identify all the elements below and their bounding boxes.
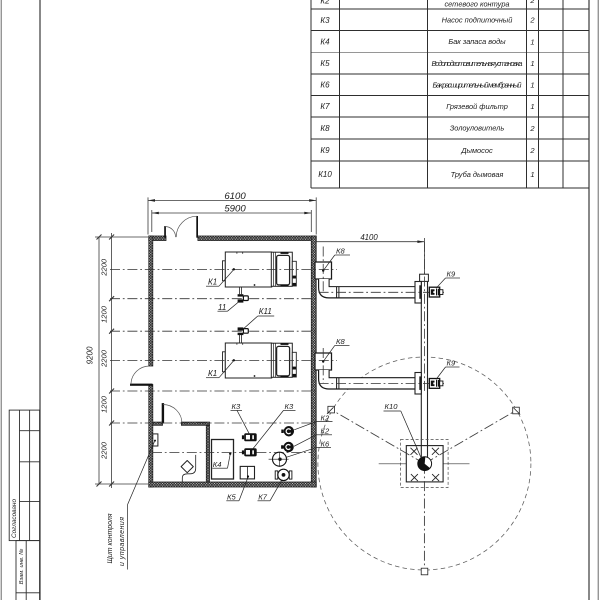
svg-text:К2: К2 <box>320 0 330 6</box>
svg-text:Труба дымовая: Труба дымовая <box>451 170 504 179</box>
svg-text:Бак запаса воды: Бак запаса воды <box>448 37 506 46</box>
svg-text:К3: К3 <box>320 16 330 25</box>
svg-text:К4: К4 <box>320 37 330 46</box>
svg-text:Дымосос: Дымосос <box>460 146 493 155</box>
svg-text:К11: К11 <box>259 307 272 316</box>
svg-text:5900: 5900 <box>224 203 246 214</box>
svg-text:К3: К3 <box>285 402 294 411</box>
svg-text:К10: К10 <box>385 402 399 411</box>
svg-text:Бак расширительный мембранный: Бак расширительный мембранный <box>433 80 522 89</box>
svg-text:К5: К5 <box>320 59 330 68</box>
svg-text:Насос подпиточный: Насос подпиточный <box>442 16 513 25</box>
svg-text:К9: К9 <box>447 270 456 279</box>
svg-text:К9: К9 <box>320 146 330 155</box>
svg-text:К9: К9 <box>447 359 456 368</box>
svg-text:сетевого контура: сетевого контура <box>444 0 509 9</box>
svg-text:Водоподготовительная установка: Водоподготовительная установка <box>432 59 523 68</box>
svg-text:2: 2 <box>529 124 535 133</box>
svg-text:2: 2 <box>529 146 535 155</box>
svg-text:9200: 9200 <box>86 346 95 364</box>
svg-text:2200: 2200 <box>100 349 109 368</box>
svg-text:К3: К3 <box>232 402 241 411</box>
svg-text:К5: К5 <box>227 492 236 501</box>
svg-text:1: 1 <box>530 37 534 46</box>
svg-text:Золоуловитель: Золоуловитель <box>450 124 505 133</box>
svg-text:6100: 6100 <box>224 191 246 202</box>
svg-text:К8: К8 <box>336 337 345 346</box>
svg-text:К7: К7 <box>320 102 330 111</box>
svg-text:Щит контроля: Щит контроля <box>107 513 114 563</box>
svg-text:К4: К4 <box>213 460 222 469</box>
svg-text:2200: 2200 <box>100 441 109 460</box>
svg-text:К1: К1 <box>208 278 217 287</box>
svg-text:К2: К2 <box>321 413 330 422</box>
svg-text:К8: К8 <box>336 247 345 256</box>
svg-text:4100: 4100 <box>360 233 378 242</box>
svg-text:и управления: и управления <box>119 517 126 566</box>
svg-text:К1: К1 <box>208 369 217 378</box>
svg-text:Взам. инв. №: Взам. инв. № <box>19 549 25 585</box>
svg-text:К7: К7 <box>258 492 267 501</box>
svg-text:1200: 1200 <box>100 305 109 323</box>
svg-text:1: 1 <box>530 102 534 111</box>
svg-text:2200: 2200 <box>100 258 109 277</box>
svg-text:1200: 1200 <box>100 395 109 413</box>
svg-text:К6: К6 <box>321 439 330 448</box>
svg-text:1: 1 <box>530 59 534 68</box>
svg-text:К6: К6 <box>320 81 330 90</box>
svg-text:К10: К10 <box>318 170 332 179</box>
svg-text:1: 1 <box>530 170 534 179</box>
svg-text:Согласовано: Согласовано <box>11 499 18 538</box>
svg-text:К8: К8 <box>320 124 330 133</box>
svg-text:11: 11 <box>218 303 226 312</box>
svg-text:2: 2 <box>529 16 535 25</box>
svg-text:К2: К2 <box>321 427 330 436</box>
svg-text:Грязевой фильтр: Грязевой фильтр <box>446 102 508 111</box>
svg-text:2: 2 <box>529 0 535 5</box>
svg-text:1: 1 <box>530 81 534 90</box>
